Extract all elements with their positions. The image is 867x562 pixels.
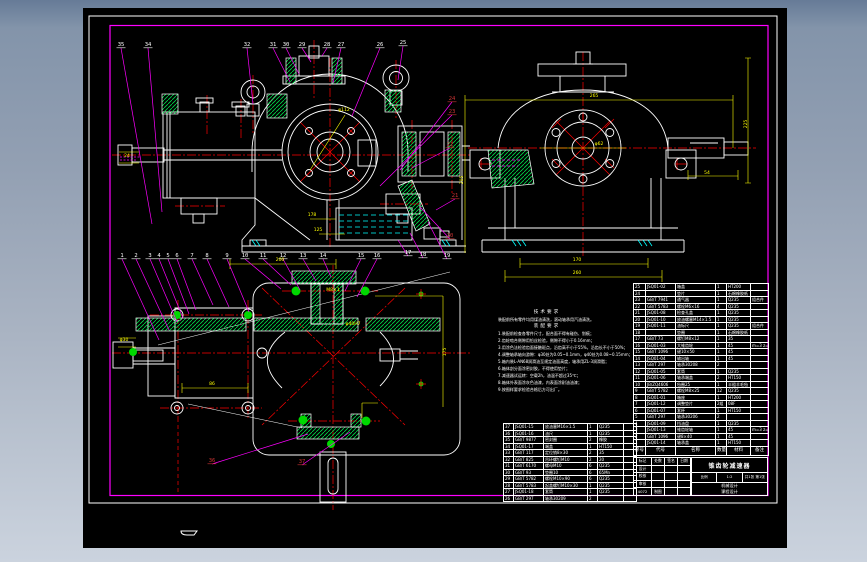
title-block-cell — [665, 465, 678, 473]
title-block-cell: 日期 — [678, 458, 691, 466]
dim-text: M8×1 — [326, 287, 340, 293]
dim-text: 265 — [590, 93, 599, 99]
title-block-cell: 签名 — [665, 458, 678, 466]
bom-cell: m=3 z=48 — [751, 342, 769, 349]
balloon-29: 29 — [299, 42, 306, 48]
note-line: 4.调整轴承轴向游隙：φ30处为0.05~0.1mm，φ40处为0.08~0.1… — [498, 351, 650, 358]
title-block: 标记处数签名日期设计校核审核4072制图 锥齿轮减速器 比例1:2共1张 第1张… — [633, 457, 768, 496]
balloon-6: 6 — [175, 253, 178, 259]
balloon-11: 11 — [260, 253, 267, 259]
title-block-cell — [678, 488, 691, 496]
balloon-8: 8 — [205, 253, 208, 259]
notes-heading-1: 技术要求 — [512, 309, 582, 316]
title-block-row: 审核 — [634, 480, 691, 488]
bom-cell: 放油螺塞M14×1.5 — [676, 316, 716, 323]
balloon-13: 13 — [300, 253, 307, 259]
bom-cell: 半粗羊毛毡 — [727, 381, 751, 388]
balloon-37: 37 — [299, 459, 306, 465]
dim-text: 24 — [124, 153, 130, 159]
note-line: 6.箱体剖分面涂密封胶，不得使用垫片； — [498, 365, 650, 372]
balloon-15: 15 — [358, 253, 365, 259]
title-block-cell — [652, 473, 665, 481]
bom-header-cell: 名称 — [676, 446, 716, 455]
title-block-cell — [652, 465, 665, 473]
title-block-cell — [665, 488, 678, 496]
note-line: 2.齿轮啮合侧隙用铅丝检验，侧隙不得小于0.16mm； — [498, 337, 650, 344]
title-block-cell: 设计 — [634, 465, 652, 473]
balloon-23: 23 — [449, 109, 456, 115]
title-block-row: 设计 — [634, 465, 691, 473]
balloon-32: 32 — [244, 42, 251, 48]
dim-text: φ62 — [595, 141, 604, 147]
balloon-3: 3 — [148, 253, 151, 259]
balloon-26: 26 — [377, 42, 384, 48]
bom-cell: 石棉橡胶纸 — [727, 329, 751, 336]
balloon-22: 22 — [447, 142, 454, 148]
balloon-7: 7 — [190, 253, 193, 259]
balloon-9: 9 — [225, 253, 228, 259]
balloon-10: 10 — [242, 253, 249, 259]
bom-header-cell: 备注 — [751, 446, 769, 455]
balloon-21: 21 — [452, 193, 459, 199]
balloon-34: 34 — [145, 42, 152, 48]
bom-header-cell: 代号 — [646, 446, 676, 455]
balloon-5: 5 — [166, 253, 169, 259]
dim-text: 178 — [308, 212, 317, 218]
dim-text: 225 — [743, 120, 749, 129]
title-block-row: 4072制图 — [634, 488, 691, 496]
sheet-count: 共1张 第1张 — [743, 473, 767, 482]
bom-cell: GB/T 297 — [514, 495, 544, 502]
balloon-31: 31 — [270, 42, 277, 48]
title-block-cell: 校核 — [634, 473, 652, 481]
balloon-27: 27 — [338, 42, 345, 48]
title-block-cell: 审核 — [634, 480, 652, 488]
notes-intro: 装配前所有零件均用煤油清洗，滚动轴承用汽油清洗。 — [498, 316, 650, 323]
bom-header-row: 序号代号名称数量材料备注 — [634, 446, 769, 455]
title-block-revision-grid: 标记处数签名日期设计校核审核4072制图 — [633, 457, 691, 496]
bom-cell: 石棉橡胶纸 — [727, 290, 751, 297]
bom-cell: 26 — [504, 495, 514, 502]
dim-text: 54 — [704, 170, 710, 176]
drawing-title: 锥齿轮减速器 — [692, 458, 767, 473]
bom-cell: 2 — [588, 495, 598, 502]
title-block-cell: 制图 — [652, 488, 665, 496]
balloon-14: 14 — [320, 253, 327, 259]
bom-header-cell: 材料 — [727, 446, 751, 455]
bom-row: 26GB/T 297轴承302092 — [504, 495, 637, 502]
title-block-cell: 处数 — [652, 458, 665, 466]
balloon-24: 24 — [449, 96, 456, 102]
balloon-35: 35 — [118, 42, 125, 48]
title-block-cell — [678, 465, 691, 473]
title-block-row: 标记处数签名日期 — [634, 458, 691, 466]
title-block-cell — [678, 473, 691, 481]
parts-list-overflow: 37JSQ01-15放油塞M16×1.51Q23536JSQ01-16油尺1Q2… — [503, 423, 637, 502]
org-cell: 机械设计 课程设计 — [692, 483, 767, 495]
note-line: 9.按图样要求检验合格后方可出厂。 — [498, 386, 650, 393]
bom-cell: m=3 z=16 — [751, 427, 769, 434]
notes-heading-2: 装配要求 — [512, 323, 582, 330]
technical-notes: 技术要求 装配前所有零件均用煤油清洗，滚动轴承用汽油清洗。 装配要求 1.装配前… — [498, 309, 650, 393]
dim-text: 200 — [276, 257, 285, 263]
bom-cell: 轴承30209 — [544, 495, 588, 502]
bom-cell — [598, 495, 624, 502]
note-line: 7.减速器试运转：空载2h，油温不超过35℃； — [498, 372, 650, 379]
balloon-17: 17 — [405, 250, 412, 256]
dim-text: φ40H7 — [346, 321, 361, 327]
parts-list-main: 25JSQ01-02箱盖1HT20024垫片1石棉橡胶纸23GB/T 7941通… — [633, 283, 769, 456]
balloon-18: 18 — [420, 252, 427, 258]
note-line: 8.箱体外表面涂灰色油漆，内表面涂耐油油漆； — [498, 379, 650, 386]
balloon-25: 25 — [400, 40, 407, 46]
page: { "colors":{"white":"#ffffff","red":"#ff… — [0, 0, 867, 562]
title-block-cell: 4072 — [634, 488, 652, 496]
balloon-30: 30 — [283, 42, 290, 48]
title-block-cell — [665, 480, 678, 488]
balloon-2: 2 — [134, 253, 137, 259]
scale-value: 1:2 — [717, 473, 742, 482]
balloon-36: 36 — [209, 458, 216, 464]
bom-header-cell: 数量 — [716, 446, 727, 455]
dim-text: 86 — [209, 381, 215, 387]
note-line: 3.用涂色法检验齿面接触斑点，沿齿高不小于55%，沿齿长不小于50%； — [498, 344, 650, 351]
note-line: 1.装配前检查各零件尺寸，配合面不得有碰伤、划痕； — [498, 330, 650, 337]
title-block-cell: 标记 — [634, 458, 652, 466]
dim-text: 205 — [459, 176, 465, 185]
balloon-19: 19 — [444, 253, 451, 259]
title-block-cell — [678, 480, 691, 488]
dim-text: φ30 — [120, 337, 129, 343]
balloon-28: 28 — [324, 42, 331, 48]
dim-text: 175 — [442, 348, 448, 357]
dim-text: 260 — [573, 270, 582, 276]
dim-text: 125 — [314, 227, 323, 233]
title-block-cell — [652, 480, 665, 488]
org-line-2: 课程设计 — [721, 489, 738, 495]
note-line: 5.箱内装L-AN68润滑油至规定油面高度，轴承用ZL-3润滑脂； — [498, 358, 650, 365]
balloon-1: 1 — [120, 253, 123, 259]
balloon-16: 16 — [374, 253, 381, 259]
title-block-row: 校核 — [634, 473, 691, 481]
title-block-cell — [665, 473, 678, 481]
balloon-20: 20 — [447, 233, 454, 239]
scale-label: 比例 — [692, 473, 717, 482]
dim-text: φ112 — [338, 107, 350, 113]
dim-text: 170 — [573, 257, 582, 263]
